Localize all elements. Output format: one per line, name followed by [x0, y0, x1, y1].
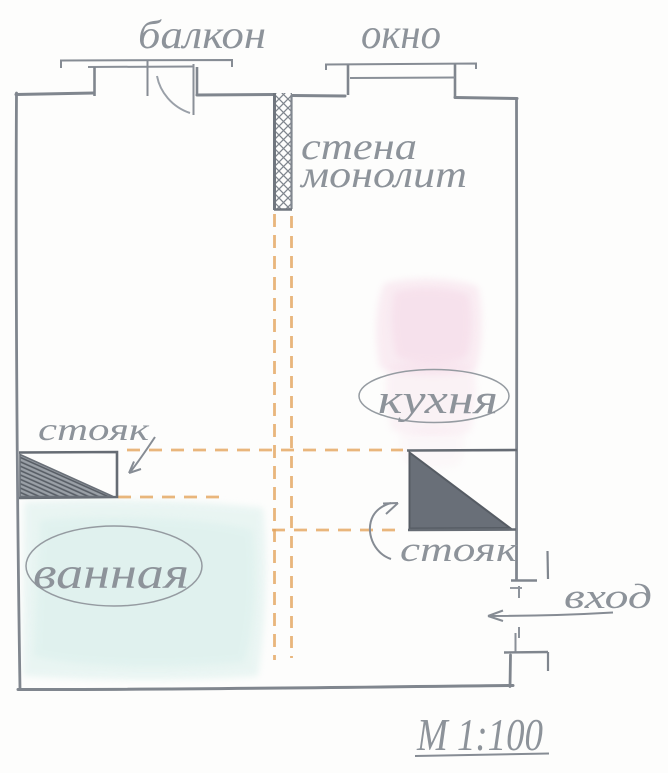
svg-text:монолит: монолит: [299, 154, 467, 196]
svg-text:окно: окно: [361, 12, 441, 58]
svg-text:стояк: стояк: [400, 530, 518, 569]
svg-text:М 1:100: М 1:100: [416, 709, 543, 760]
svg-text:стояк: стояк: [38, 411, 150, 447]
svg-text:ванная: ванная: [33, 549, 189, 598]
svg-text:балкон: балкон: [138, 12, 266, 57]
svg-text:кухня: кухня: [378, 376, 498, 422]
svg-text:вход: вход: [564, 577, 652, 616]
